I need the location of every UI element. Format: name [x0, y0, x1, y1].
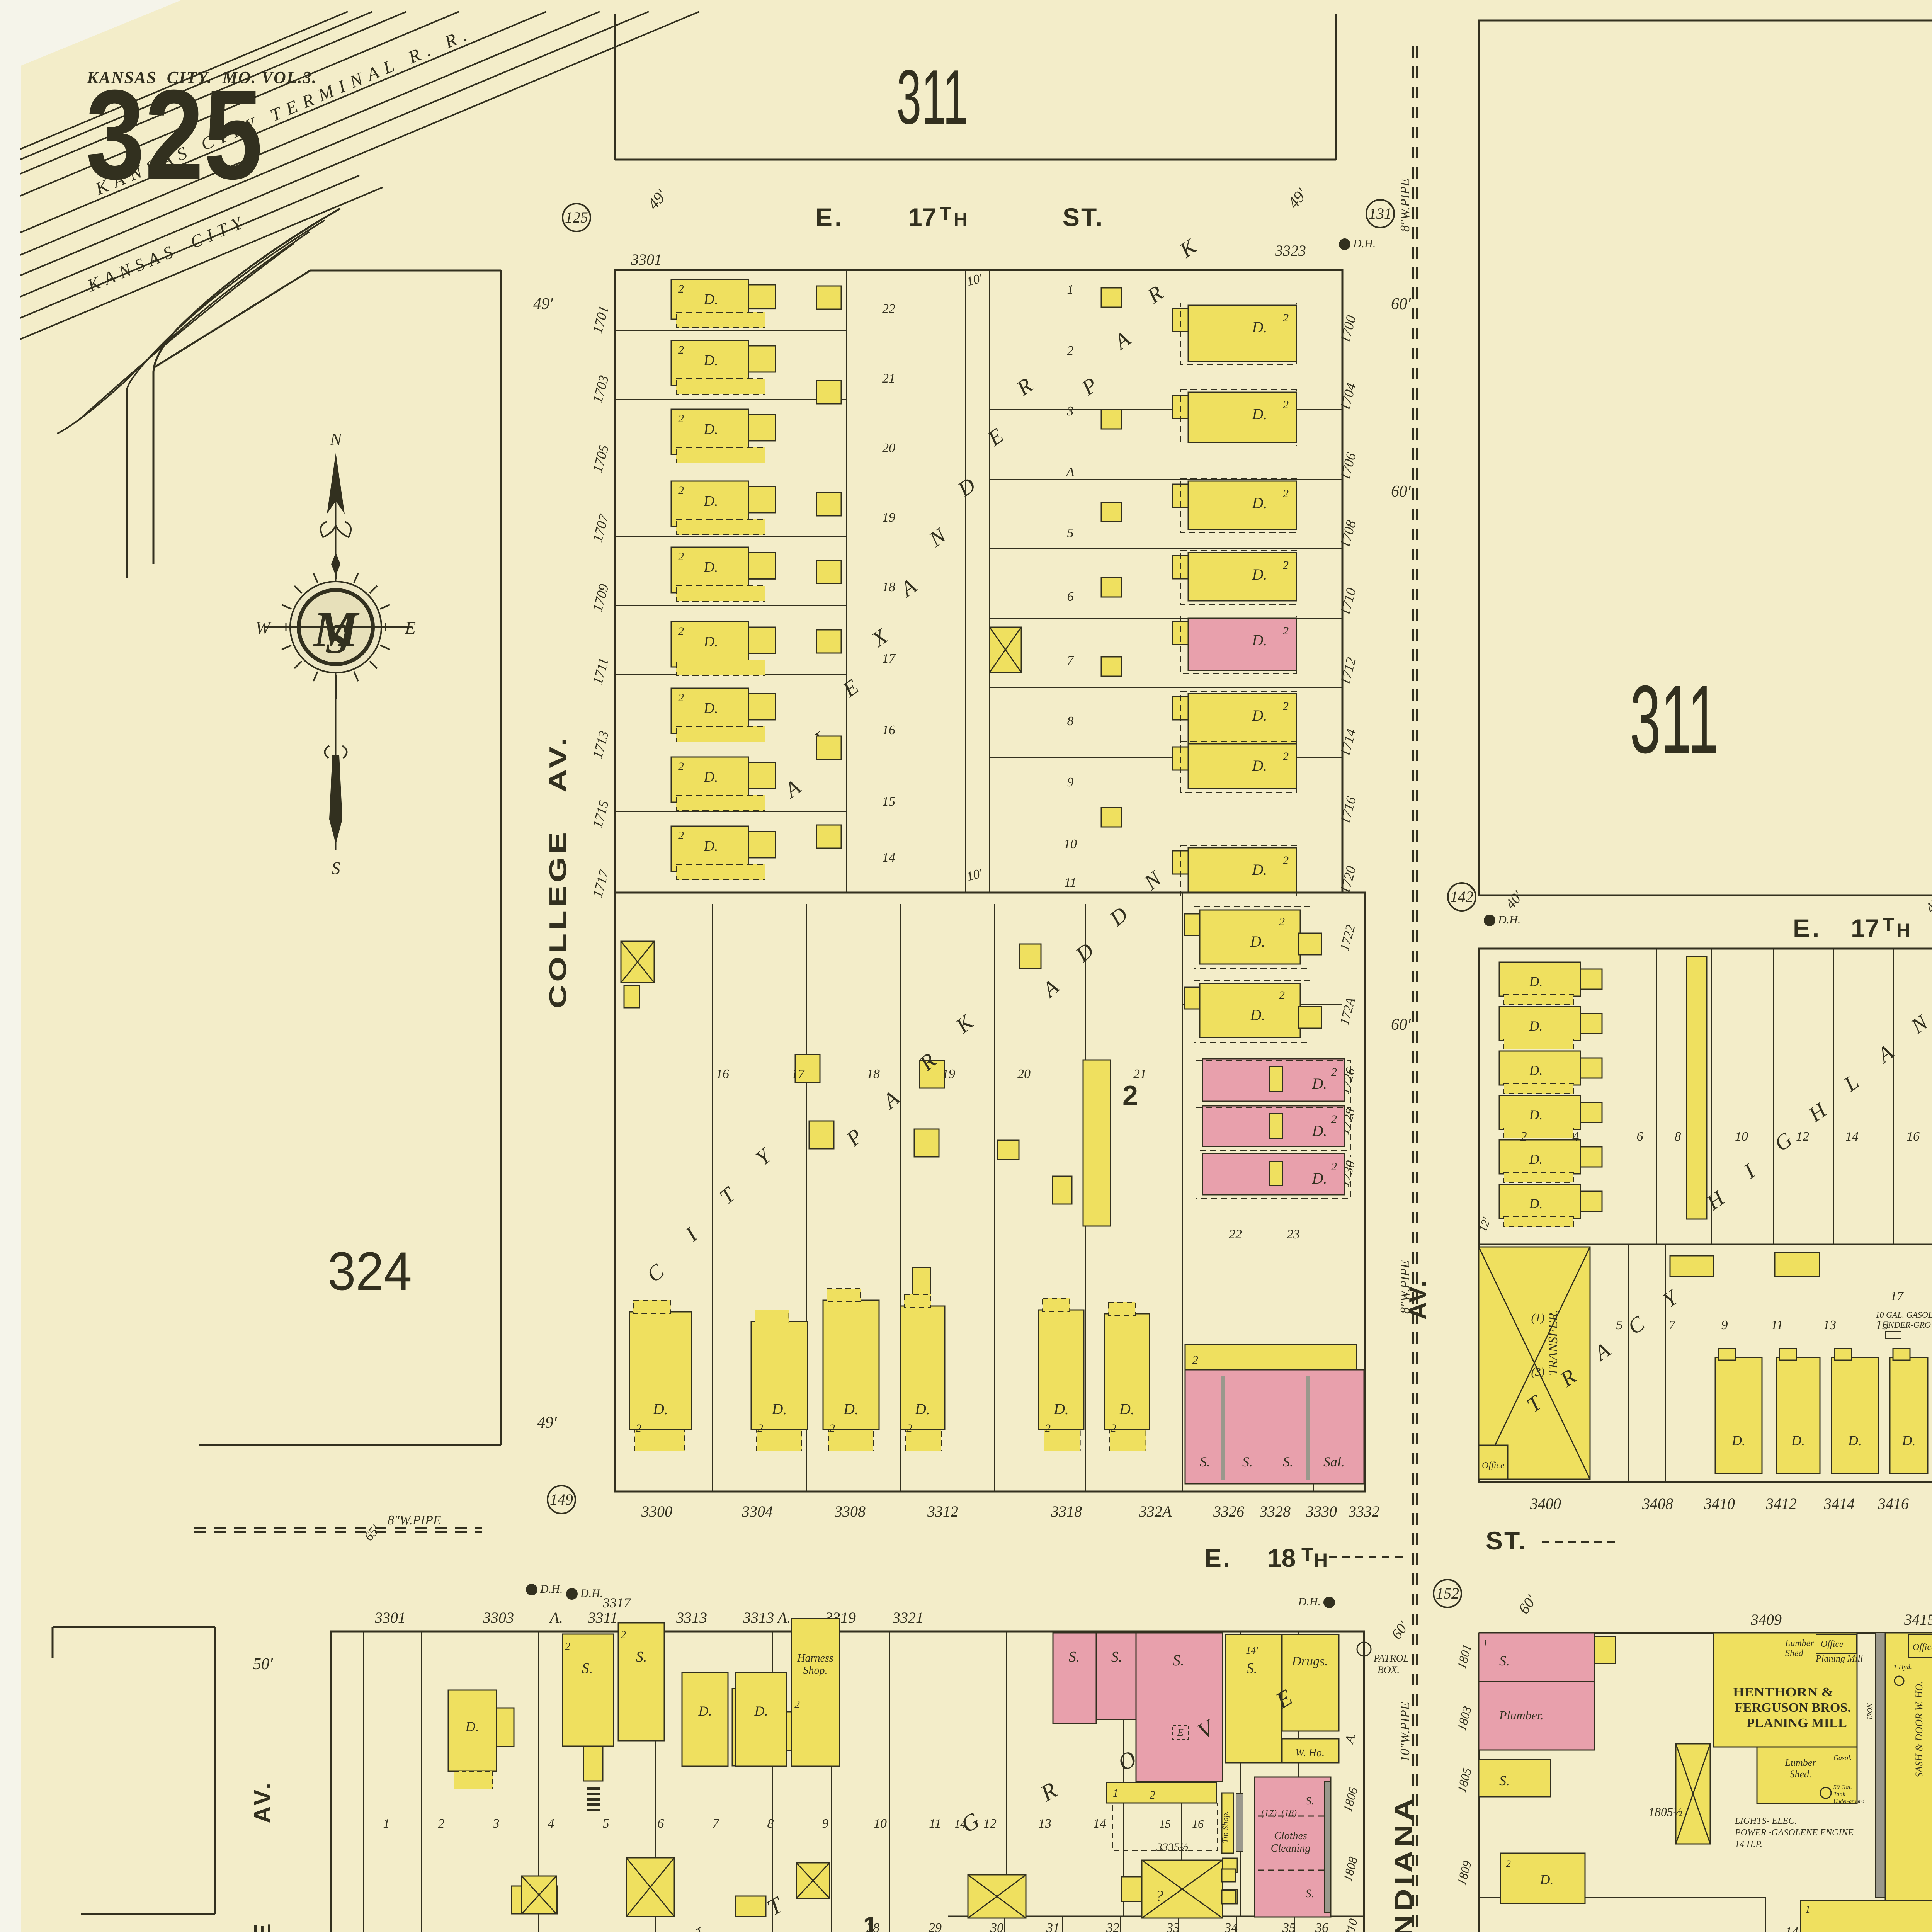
svg-text:Sal.: Sal. — [1323, 1454, 1345, 1469]
svg-text:?: ? — [1155, 1887, 1163, 1905]
svg-text:2: 2 — [678, 484, 684, 497]
svg-text:D.: D. — [754, 1703, 768, 1719]
svg-text:3313: 3313 — [676, 1609, 707, 1626]
svg-text:8″W.P​IPE: 8″W.P​IPE — [388, 1513, 441, 1527]
svg-text:11: 11 — [1771, 1318, 1783, 1332]
svg-text:17: 17 — [882, 651, 896, 666]
svg-text:Tin Shop.: Tin Shop. — [1220, 1811, 1230, 1843]
svg-text:T: T — [1301, 1544, 1313, 1565]
svg-text:2: 2 — [794, 1699, 800, 1711]
svg-text:2: 2 — [678, 625, 684, 638]
svg-text:14: 14 — [1845, 1129, 1859, 1144]
svg-text:16: 16 — [882, 723, 895, 737]
svg-text:311: 311 — [1630, 665, 1719, 773]
svg-text:H: H — [1314, 1549, 1328, 1571]
svg-text:2: 2 — [1192, 1353, 1198, 1367]
svg-text:D.: D. — [1312, 1122, 1327, 1139]
svg-text:W. Ho.: W. Ho. — [1295, 1747, 1325, 1759]
svg-text:FERGUSON BROS.: FERGUSON BROS. — [1735, 1701, 1851, 1715]
svg-text:T: T — [1883, 914, 1895, 935]
svg-text:SASH & DOOR W. HO.: SASH & DOOR W. HO. — [1913, 1681, 1925, 1777]
svg-text:3323: 3323 — [1275, 242, 1306, 259]
svg-text:D.: D. — [1252, 494, 1267, 512]
svg-text:3328: 3328 — [1259, 1503, 1291, 1520]
svg-text:49′: 49′ — [533, 295, 553, 313]
svg-text:A.: A. — [549, 1609, 563, 1626]
svg-text:D.: D. — [698, 1703, 712, 1719]
svg-text:1: 1 — [863, 1911, 878, 1932]
svg-text:2: 2 — [636, 1422, 641, 1435]
svg-text:16: 16 — [716, 1067, 729, 1081]
svg-text:34: 34 — [1224, 1921, 1238, 1932]
svg-text:Office: Office — [1913, 1642, 1932, 1652]
svg-text:D.: D. — [465, 1719, 479, 1734]
svg-text:E: E — [1177, 1727, 1184, 1738]
svg-text:5: 5 — [1616, 1318, 1623, 1332]
svg-text:Drugs.: Drugs. — [1291, 1654, 1328, 1668]
svg-text:3308: 3308 — [834, 1503, 866, 1520]
svg-text:LIGHTS- ELEC.: LIGHTS- ELEC. — [1735, 1816, 1797, 1826]
svg-text:BOX.: BOX. — [1378, 1664, 1400, 1675]
svg-text:10: 10 — [874, 1816, 887, 1831]
svg-text:3321: 3321 — [892, 1609, 923, 1626]
svg-text:D.: D. — [1529, 1196, 1543, 1211]
svg-text:D.: D. — [704, 769, 718, 785]
svg-text:(17) (18): (17) (18) — [1261, 1808, 1297, 1818]
svg-text:2: 2 — [1520, 1129, 1527, 1144]
svg-text:311: 311 — [896, 54, 968, 140]
svg-text:2: 2 — [1122, 1080, 1138, 1111]
svg-text:16: 16 — [1906, 1129, 1920, 1144]
svg-text:17: 17 — [791, 1067, 805, 1081]
svg-text:D.: D. — [1252, 861, 1267, 878]
svg-text:23: 23 — [1287, 1227, 1300, 1242]
svg-text:2: 2 — [1150, 1789, 1155, 1801]
svg-text:21: 21 — [1133, 1067, 1146, 1081]
svg-text:3416: 3416 — [1878, 1495, 1909, 1512]
svg-text:2: 2 — [1067, 344, 1074, 358]
svg-text:2: 2 — [1506, 1858, 1511, 1869]
svg-text:3335½: 3335½ — [1156, 1841, 1189, 1854]
svg-text:D.: D. — [1053, 1400, 1069, 1418]
svg-text:19: 19 — [882, 510, 895, 525]
svg-text:332A: 332A — [1139, 1503, 1172, 1520]
svg-text:18: 18 — [882, 580, 895, 594]
svg-text:Under-ground: Under-ground — [1833, 1799, 1865, 1804]
svg-text:2: 2 — [678, 760, 684, 773]
svg-text:AV.: AV. — [1405, 1279, 1431, 1320]
svg-text:2: 2 — [1045, 1422, 1051, 1435]
svg-text:20: 20 — [882, 441, 895, 455]
svg-text:INDIANA: INDIANA — [1389, 1795, 1418, 1932]
svg-text:21: 21 — [882, 371, 895, 386]
svg-text:D.: D. — [1312, 1170, 1327, 1187]
svg-text:15: 15 — [1159, 1818, 1171, 1830]
svg-text:2: 2 — [621, 1629, 626, 1641]
svg-text:10: 10 — [1735, 1129, 1748, 1144]
svg-text:17: 17 — [1851, 914, 1879, 942]
svg-text:3408: 3408 — [1642, 1495, 1673, 1512]
svg-text:3300: 3300 — [641, 1503, 672, 1520]
svg-text:8: 8 — [1675, 1129, 1681, 1144]
svg-text:3330: 3330 — [1306, 1503, 1337, 1520]
svg-text:Gasol.: Gasol. — [1833, 1754, 1852, 1762]
svg-text:IRON: IRON — [1866, 1703, 1874, 1720]
svg-text:Lumber: Lumber — [1785, 1638, 1814, 1648]
svg-text:D.: D. — [1252, 757, 1267, 774]
svg-text:50 Gal.: 50 Gal. — [1833, 1784, 1852, 1791]
svg-text:3301: 3301 — [374, 1609, 406, 1626]
svg-text:D.: D. — [704, 352, 718, 369]
svg-text:Cleaning: Cleaning — [1271, 1842, 1311, 1854]
svg-text:35: 35 — [1282, 1921, 1296, 1932]
svg-text:13: 13 — [1823, 1318, 1836, 1332]
svg-text:COLLEGE: COLLEGE — [249, 1920, 276, 1932]
svg-text:8″W.P​IPE: 8″W.P​IPE — [1398, 178, 1412, 232]
svg-text:D.H.: D.H. — [1498, 913, 1520, 926]
svg-text:2: 2 — [1331, 1160, 1337, 1173]
svg-text:D.: D. — [1312, 1075, 1327, 1092]
svg-text:4: 4 — [548, 1816, 554, 1831]
svg-text:14: 14 — [882, 850, 895, 865]
svg-text:5: 5 — [603, 1816, 609, 1831]
svg-text:S.: S. — [1283, 1454, 1293, 1469]
svg-text:2: 2 — [1283, 700, 1289, 713]
svg-text:3326: 3326 — [1213, 1503, 1244, 1520]
svg-text:2: 2 — [678, 412, 684, 425]
svg-text:ST.: ST. — [1486, 1526, 1527, 1555]
svg-text:3414: 3414 — [1823, 1495, 1855, 1512]
svg-text:D.H.: D.H. — [1298, 1595, 1321, 1608]
svg-text:D.: D. — [1252, 566, 1267, 583]
svg-text:D.: D. — [704, 838, 718, 854]
svg-text:(3): (3) — [1531, 1366, 1545, 1378]
svg-text:3304: 3304 — [742, 1503, 773, 1520]
svg-text:H: H — [1896, 920, 1910, 941]
svg-text:18: 18 — [1267, 1544, 1296, 1572]
svg-text:D.: D. — [1252, 318, 1267, 336]
svg-text:D.: D. — [704, 700, 718, 716]
svg-text:1: 1 — [1067, 282, 1074, 297]
svg-text:15: 15 — [882, 794, 895, 809]
svg-text:20: 20 — [1017, 1067, 1031, 1081]
svg-text:1: 1 — [383, 1816, 390, 1831]
svg-text:3: 3 — [493, 1816, 500, 1831]
svg-text:7: 7 — [1669, 1318, 1676, 1332]
svg-text:2: 2 — [1331, 1066, 1337, 1078]
svg-text:2: 2 — [678, 691, 684, 704]
svg-text:7: 7 — [1067, 653, 1075, 668]
svg-text:PLANING MILL: PLANING MILL — [1747, 1716, 1847, 1730]
svg-text:Shed.: Shed. — [1789, 1769, 1811, 1780]
svg-text:D.: D. — [1731, 1433, 1745, 1448]
svg-text:22: 22 — [882, 302, 895, 316]
svg-text:S: S — [332, 858, 340, 878]
svg-text:Lumber: Lumber — [1785, 1757, 1817, 1768]
svg-text:Harness: Harness — [797, 1652, 833, 1664]
svg-text:1 Hyd.: 1 Hyd. — [1893, 1663, 1912, 1671]
svg-text:D.: D. — [1529, 974, 1543, 989]
svg-text:(1): (1) — [1531, 1311, 1545, 1324]
svg-text:18: 18 — [867, 1067, 880, 1081]
svg-text:2: 2 — [1283, 487, 1289, 500]
svg-text:Shed: Shed — [1785, 1648, 1804, 1658]
svg-text:19: 19 — [942, 1067, 955, 1081]
svg-text:152: 152 — [1436, 1585, 1459, 1602]
svg-text:3312: 3312 — [927, 1503, 958, 1520]
svg-text:2: 2 — [678, 829, 684, 842]
svg-text:3412: 3412 — [1765, 1495, 1797, 1512]
svg-text:D.: D. — [1529, 1107, 1543, 1122]
svg-text:D.: D. — [1252, 405, 1267, 423]
svg-text:W: W — [255, 618, 272, 638]
svg-text:1: 1 — [1483, 1638, 1488, 1648]
svg-text:S.: S. — [1499, 1773, 1510, 1788]
svg-text:S.: S. — [1200, 1454, 1210, 1469]
svg-text:60′: 60′ — [1391, 483, 1411, 500]
svg-text:2: 2 — [1283, 398, 1289, 411]
svg-text:22: 22 — [1229, 1227, 1242, 1242]
svg-text:3410: 3410 — [1704, 1495, 1735, 1512]
svg-text:125: 125 — [565, 209, 588, 226]
svg-text:2: 2 — [678, 344, 684, 356]
svg-text:9: 9 — [1067, 775, 1074, 789]
svg-text:3313 A.: 3313 A. — [743, 1609, 791, 1626]
svg-text:POWER~GASOLENE ENGINE: POWER~GASOLENE ENGINE — [1735, 1828, 1854, 1838]
svg-text:3400: 3400 — [1530, 1495, 1561, 1512]
svg-text:10 GAL. GASOL. TANK: 10 GAL. GASOL. TANK — [1876, 1310, 1932, 1320]
svg-text:N: N — [330, 429, 343, 449]
svg-text:S.: S. — [1111, 1649, 1122, 1665]
svg-text:3318: 3318 — [1051, 1503, 1082, 1520]
svg-text:8: 8 — [1067, 714, 1074, 728]
svg-text:3311: 3311 — [587, 1609, 617, 1626]
svg-text:6: 6 — [1067, 590, 1074, 604]
svg-text:D.: D. — [1119, 1400, 1134, 1418]
svg-text:2: 2 — [829, 1422, 835, 1435]
svg-text:PATROL: PATROL — [1373, 1653, 1409, 1664]
svg-text:2: 2 — [565, 1641, 570, 1653]
svg-text:S.: S. — [1069, 1649, 1080, 1665]
svg-text:131: 131 — [1369, 205, 1392, 222]
svg-text:H: H — [954, 209, 968, 230]
svg-text:3301: 3301 — [631, 251, 662, 268]
svg-text:49′: 49′ — [537, 1414, 557, 1432]
svg-text:D.: D. — [772, 1400, 787, 1418]
svg-text:Clothes: Clothes — [1274, 1830, 1307, 1842]
svg-text:D.H.: D.H. — [1353, 237, 1376, 250]
svg-text:S.: S. — [636, 1649, 647, 1665]
svg-text:12: 12 — [983, 1816, 997, 1831]
svg-text:2: 2 — [1283, 854, 1289, 867]
svg-text:17: 17 — [908, 203, 936, 231]
svg-text:E.: E. — [1793, 914, 1821, 942]
svg-text:ST.: ST. — [1063, 203, 1104, 231]
svg-text:S.: S. — [1242, 1454, 1253, 1469]
svg-text:D.: D. — [704, 291, 718, 308]
svg-text:S.: S. — [1306, 1794, 1315, 1807]
svg-text:Tank: Tank — [1833, 1791, 1845, 1798]
svg-text:13: 13 — [1038, 1816, 1051, 1831]
svg-text:S.: S. — [582, 1660, 593, 1677]
svg-text:S.: S. — [1306, 1887, 1315, 1900]
svg-text:2: 2 — [1283, 559, 1289, 571]
svg-text:36: 36 — [1315, 1921, 1328, 1932]
svg-text:16: 16 — [1192, 1818, 1204, 1830]
svg-text:AV.: AV. — [249, 1781, 276, 1823]
svg-text:14′: 14′ — [1246, 1645, 1258, 1656]
svg-text:4: 4 — [1573, 1129, 1579, 1144]
svg-text:50′: 50′ — [253, 1655, 273, 1673]
svg-text:E: E — [405, 618, 416, 638]
svg-text:D.H.: D.H. — [540, 1583, 563, 1595]
svg-text:Shop.: Shop. — [803, 1665, 828, 1677]
svg-text:TRANSFER.: TRANSFER. — [1546, 1310, 1560, 1376]
svg-text:14: 14 — [1093, 1816, 1106, 1831]
svg-text:Office: Office — [1482, 1461, 1505, 1471]
svg-text:2: 2 — [678, 282, 684, 295]
svg-text:D.: D. — [843, 1400, 859, 1418]
svg-text:S: S — [325, 615, 349, 662]
svg-text:2: 2 — [757, 1422, 763, 1435]
svg-text:14′: 14′ — [1785, 1925, 1801, 1932]
svg-text:T: T — [940, 203, 952, 224]
svg-text:11: 11 — [929, 1816, 941, 1831]
svg-text:60′: 60′ — [1391, 295, 1411, 313]
svg-text:9: 9 — [822, 1816, 829, 1831]
svg-text:33: 33 — [1166, 1921, 1180, 1932]
svg-text:S.: S. — [1173, 1651, 1184, 1669]
svg-text:Planing Mill: Planing Mill — [1815, 1654, 1863, 1664]
svg-text:D.: D. — [915, 1400, 930, 1418]
svg-text:11: 11 — [1064, 876, 1076, 890]
svg-text:D.: D. — [1529, 1151, 1543, 1167]
svg-text:2: 2 — [438, 1816, 445, 1831]
svg-text:D.: D. — [1540, 1872, 1554, 1887]
svg-text:D.: D. — [704, 559, 718, 575]
svg-text:COLLEGE AV.: COLLEGE AV. — [545, 734, 571, 1009]
svg-text:7: 7 — [713, 1816, 720, 1831]
svg-text:17: 17 — [1890, 1289, 1904, 1303]
svg-text:D.: D. — [1902, 1433, 1916, 1448]
svg-text:2: 2 — [1283, 750, 1289, 763]
svg-text:3415: 3415 — [1904, 1611, 1932, 1628]
svg-text:D.: D. — [1848, 1433, 1862, 1448]
svg-text:D.: D. — [704, 634, 718, 650]
svg-text:12: 12 — [1796, 1129, 1809, 1144]
svg-text:S.: S. — [1499, 1653, 1510, 1668]
svg-text:32: 32 — [1106, 1921, 1119, 1932]
svg-text:D.H.: D.H. — [580, 1587, 603, 1600]
svg-text:D.: D. — [704, 421, 718, 437]
svg-text:3409: 3409 — [1750, 1611, 1782, 1628]
svg-text:E.: E. — [815, 203, 844, 231]
svg-text:2: 2 — [1111, 1422, 1116, 1435]
svg-text:D.: D. — [1250, 933, 1265, 950]
svg-text:3: 3 — [1067, 404, 1074, 418]
svg-text:10″W.P​IPE: 10″W.P​IPE — [1398, 1702, 1412, 1762]
svg-text:D.: D. — [704, 493, 718, 509]
svg-text:HENTHORN &: HENTHORN & — [1733, 1685, 1833, 1699]
svg-text:2: 2 — [678, 550, 684, 563]
svg-text:2: 2 — [1279, 989, 1285, 1002]
svg-text:2: 2 — [1331, 1113, 1337, 1126]
svg-text:D.: D. — [1252, 631, 1267, 649]
svg-text:UNDER-GROUND.: UNDER-GROUND. — [1882, 1320, 1932, 1330]
svg-text:3332: 3332 — [1348, 1503, 1379, 1520]
svg-text:A: A — [1066, 465, 1075, 479]
svg-text:6: 6 — [658, 1816, 664, 1831]
svg-text:1: 1 — [1805, 1904, 1810, 1915]
svg-text:D.: D. — [1250, 1006, 1265, 1024]
svg-text:10: 10 — [1064, 837, 1077, 851]
svg-text:D.: D. — [1791, 1433, 1805, 1448]
svg-text:D.: D. — [1529, 1018, 1543, 1034]
svg-text:6: 6 — [1637, 1129, 1643, 1144]
svg-text:5: 5 — [1067, 526, 1074, 540]
svg-text:D.: D. — [1529, 1063, 1543, 1078]
svg-text:142: 142 — [1450, 888, 1473, 905]
svg-text:2: 2 — [1283, 624, 1289, 637]
svg-text:14 H.P.: 14 H.P. — [1735, 1839, 1762, 1849]
svg-text:149: 149 — [550, 1491, 573, 1508]
svg-text:9: 9 — [1721, 1318, 1728, 1332]
svg-text:8: 8 — [767, 1816, 774, 1831]
svg-text:E.: E. — [1204, 1544, 1231, 1572]
svg-text:31: 31 — [1046, 1921, 1060, 1932]
svg-text:30: 30 — [990, 1921, 1003, 1932]
svg-text:29: 29 — [929, 1921, 942, 1932]
svg-text:2: 2 — [906, 1422, 912, 1435]
svg-text:2: 2 — [1279, 915, 1285, 928]
svg-text:325: 325 — [86, 63, 263, 206]
svg-text:S.: S. — [1247, 1660, 1258, 1677]
svg-text:Office: Office — [1821, 1639, 1844, 1649]
svg-text:3303: 3303 — [483, 1609, 514, 1626]
svg-text:1805½: 1805½ — [1648, 1805, 1682, 1819]
svg-text:60′: 60′ — [1391, 1016, 1411, 1034]
svg-text:324: 324 — [328, 1241, 412, 1301]
svg-text:3317: 3317 — [602, 1595, 631, 1611]
svg-text:2: 2 — [1283, 311, 1289, 324]
svg-text:Plumber.: Plumber. — [1499, 1708, 1544, 1722]
svg-text:D.: D. — [653, 1400, 668, 1418]
svg-text:D.: D. — [1252, 707, 1267, 724]
svg-text:1: 1 — [1113, 1787, 1118, 1799]
